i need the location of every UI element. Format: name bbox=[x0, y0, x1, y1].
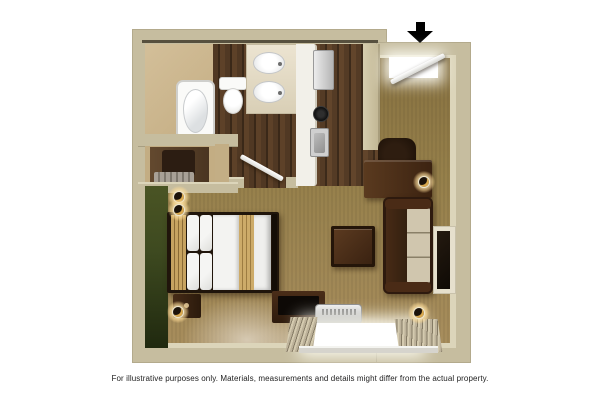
sofa-armrest bbox=[385, 199, 431, 209]
faucet-icon bbox=[278, 62, 282, 66]
window-sill bbox=[299, 346, 438, 353]
vanity-sink bbox=[253, 52, 285, 74]
coffee-table-top bbox=[334, 229, 372, 264]
green-accent-wall bbox=[145, 186, 168, 348]
bathtub-basin bbox=[183, 89, 208, 133]
vanity-sink bbox=[253, 81, 285, 103]
pillow bbox=[200, 253, 212, 290]
closet-interior bbox=[150, 147, 209, 183]
sconce-bulb bbox=[172, 306, 184, 318]
coffee-table bbox=[331, 226, 375, 267]
bed-duvet-foot bbox=[254, 215, 271, 290]
faucet-icon bbox=[278, 91, 282, 95]
toilet bbox=[223, 88, 243, 114]
bed bbox=[167, 212, 279, 293]
kitchen-sink-basin bbox=[314, 133, 325, 153]
pillow bbox=[187, 253, 199, 290]
sconce-bulb bbox=[418, 176, 430, 188]
sofa-armrest bbox=[385, 282, 431, 292]
ac-unit bbox=[315, 304, 362, 324]
sofa-cushions bbox=[407, 208, 430, 283]
sofa-backrest bbox=[386, 208, 407, 283]
sconce-bulb bbox=[413, 307, 425, 319]
refrigerator bbox=[313, 50, 334, 90]
disclaimer-caption: For illustrative purposes only. Material… bbox=[0, 374, 600, 383]
sconce-light-icon bbox=[408, 302, 430, 324]
sofa bbox=[383, 197, 433, 294]
tv-screen bbox=[437, 231, 450, 289]
sconce-light-icon bbox=[168, 199, 190, 221]
sconce-light-icon bbox=[167, 301, 189, 323]
closet-area bbox=[145, 146, 217, 184]
sconce-light-icon bbox=[413, 171, 435, 193]
bed-footboard bbox=[272, 214, 277, 291]
bed-runner bbox=[239, 215, 254, 290]
bathtub bbox=[176, 80, 215, 140]
bed-headboard bbox=[171, 215, 186, 290]
bed-duvet bbox=[213, 215, 239, 290]
bathroom-vanity bbox=[246, 44, 298, 114]
entry-arrow-down-icon-head bbox=[407, 31, 433, 43]
console-tv bbox=[278, 296, 319, 315]
ac-unit-vents bbox=[322, 309, 357, 315]
pillow bbox=[200, 215, 212, 251]
sconce-bulb bbox=[173, 204, 185, 216]
kitchen-sink bbox=[310, 128, 329, 157]
bathroom-top-wall-trim bbox=[142, 40, 378, 43]
wall-mounted-tv bbox=[433, 226, 456, 294]
stove-burner bbox=[313, 106, 329, 122]
